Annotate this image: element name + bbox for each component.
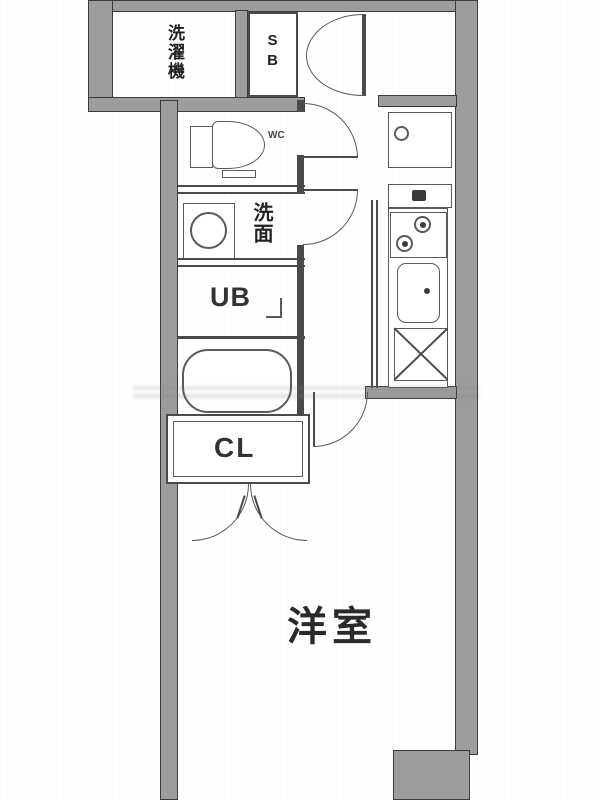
toilet-bowl — [212, 121, 265, 169]
toilet-door-leaf — [303, 156, 358, 158]
ub-step-mark — [266, 298, 282, 318]
toilet-tank — [190, 126, 213, 168]
wall-top — [88, 0, 478, 12]
shoe-box-label: SB — [264, 32, 281, 72]
wall-toilet-bottom — [178, 185, 305, 194]
closet-door-arc-left — [192, 484, 249, 541]
wall-hallway-left-b — [297, 155, 304, 193]
wall-laundry-right — [235, 10, 248, 100]
closet-label: CL — [214, 432, 255, 464]
wall-ub-bottom — [178, 336, 305, 339]
stove-burner-2-dot — [402, 241, 408, 247]
kitchen-hall-divider-l — [371, 200, 373, 388]
wall-laundry-left — [88, 0, 113, 112]
kitchen-shelf-mark — [412, 190, 426, 201]
stove-burner-1-dot — [420, 222, 426, 228]
entrance-door-arc-upper — [306, 14, 363, 56]
wall-washroom-bottom — [178, 258, 305, 267]
washbasin-label: 洗面 — [247, 202, 276, 244]
unit-bath-label: UB — [210, 282, 251, 313]
washroom-door-leaf — [303, 189, 358, 191]
entrance-door-arc-lower — [306, 56, 363, 96]
floor-plan: 洗濯機 SB WC 洗面 UB CL — [0, 0, 600, 800]
toilet-door-arc — [303, 103, 358, 158]
toilet-label: WC — [268, 130, 285, 141]
laundry-label: 洗濯機 — [162, 24, 187, 81]
toilet-base — [222, 170, 256, 178]
pillar-bottom-right — [393, 750, 470, 800]
western-room-label: 洋室 — [287, 594, 377, 652]
washing-machine-drain — [394, 126, 409, 141]
wall-entrance-bottom — [378, 95, 457, 107]
kitchen-hall-divider-r — [376, 200, 378, 388]
washroom-door-arc — [303, 190, 358, 245]
watermark-band — [133, 374, 480, 404]
washbasin-icon — [190, 212, 227, 249]
sink-drain-dot — [424, 288, 430, 294]
kitchen-sink-icon — [397, 263, 440, 323]
wall-laundry-bottom — [88, 97, 305, 112]
